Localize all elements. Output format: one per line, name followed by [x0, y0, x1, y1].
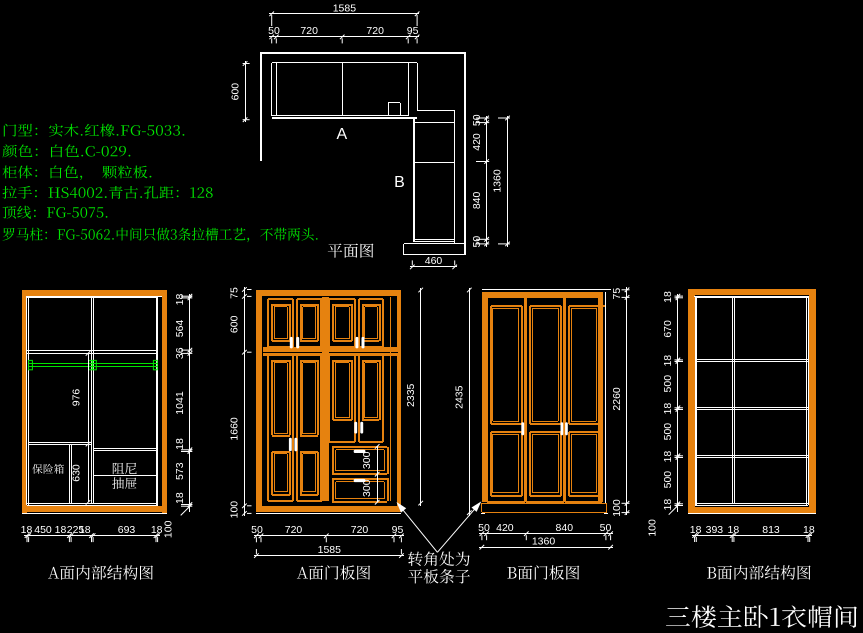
svg-text:720: 720 — [285, 524, 303, 536]
svg-text:460: 460 — [425, 255, 443, 267]
svg-text:600: 600 — [229, 83, 241, 101]
svg-text:50: 50 — [471, 236, 483, 248]
svg-text:50: 50 — [478, 522, 490, 534]
svg-text:18: 18 — [662, 451, 674, 463]
svg-text:95: 95 — [392, 524, 404, 536]
svg-text:18: 18 — [21, 524, 33, 536]
svg-text:720: 720 — [351, 524, 369, 536]
svg-text:18: 18 — [174, 492, 186, 504]
svg-text:450: 450 — [34, 524, 52, 536]
svg-text:500: 500 — [662, 375, 674, 393]
svg-text:500: 500 — [662, 471, 674, 489]
svg-text:75: 75 — [229, 287, 241, 299]
svg-text:18: 18 — [803, 524, 815, 536]
svg-text:600: 600 — [229, 315, 241, 333]
svg-text:1041: 1041 — [174, 391, 186, 415]
svg-text:95: 95 — [407, 25, 419, 37]
svg-text:18: 18 — [662, 355, 674, 367]
svg-text:18: 18 — [174, 438, 186, 450]
svg-text:420: 420 — [471, 133, 483, 151]
svg-text:500: 500 — [662, 423, 674, 441]
svg-text:1660: 1660 — [229, 417, 241, 441]
svg-text:573: 573 — [174, 462, 186, 480]
svg-text:75: 75 — [611, 288, 623, 300]
svg-text:18: 18 — [662, 403, 674, 415]
svg-text:18: 18 — [728, 524, 740, 536]
svg-text:670: 670 — [662, 320, 674, 338]
svg-text:840: 840 — [471, 191, 483, 209]
svg-text:50: 50 — [471, 114, 483, 126]
svg-text:2335: 2335 — [405, 383, 417, 407]
svg-text:100: 100 — [229, 501, 241, 519]
svg-text:300: 300 — [361, 479, 373, 497]
svg-text:1360: 1360 — [492, 169, 504, 193]
svg-text:18: 18 — [79, 524, 91, 536]
svg-text:A: A — [336, 126, 347, 143]
svg-text:18: 18 — [55, 524, 67, 536]
svg-text:1360: 1360 — [532, 536, 556, 548]
svg-text:393: 393 — [706, 524, 724, 536]
svg-text:50: 50 — [268, 25, 280, 37]
svg-text:2435: 2435 — [454, 385, 466, 409]
svg-text:564: 564 — [174, 320, 186, 338]
svg-text:840: 840 — [556, 522, 574, 534]
svg-text:2260: 2260 — [611, 387, 623, 411]
svg-text:300: 300 — [361, 451, 373, 469]
svg-text:50: 50 — [251, 524, 263, 536]
svg-text:420: 420 — [496, 522, 514, 534]
svg-text:976: 976 — [71, 389, 83, 407]
svg-text:693: 693 — [118, 524, 136, 536]
svg-text:720: 720 — [300, 25, 318, 37]
svg-text:18: 18 — [662, 291, 674, 303]
svg-text:100: 100 — [611, 499, 623, 517]
svg-text:18: 18 — [662, 499, 674, 511]
svg-text:18: 18 — [690, 524, 702, 536]
svg-text:18: 18 — [174, 294, 186, 306]
svg-text:720: 720 — [366, 25, 384, 37]
svg-text:813: 813 — [762, 524, 780, 536]
svg-text:1585: 1585 — [318, 544, 342, 556]
svg-text:100: 100 — [163, 520, 175, 538]
svg-text:100: 100 — [646, 519, 658, 537]
svg-text:630: 630 — [71, 464, 83, 482]
svg-text:B: B — [394, 174, 405, 191]
svg-text:18: 18 — [151, 524, 163, 536]
svg-text:50: 50 — [600, 522, 612, 534]
svg-text:36: 36 — [174, 347, 186, 359]
svg-text:1585: 1585 — [333, 2, 357, 14]
